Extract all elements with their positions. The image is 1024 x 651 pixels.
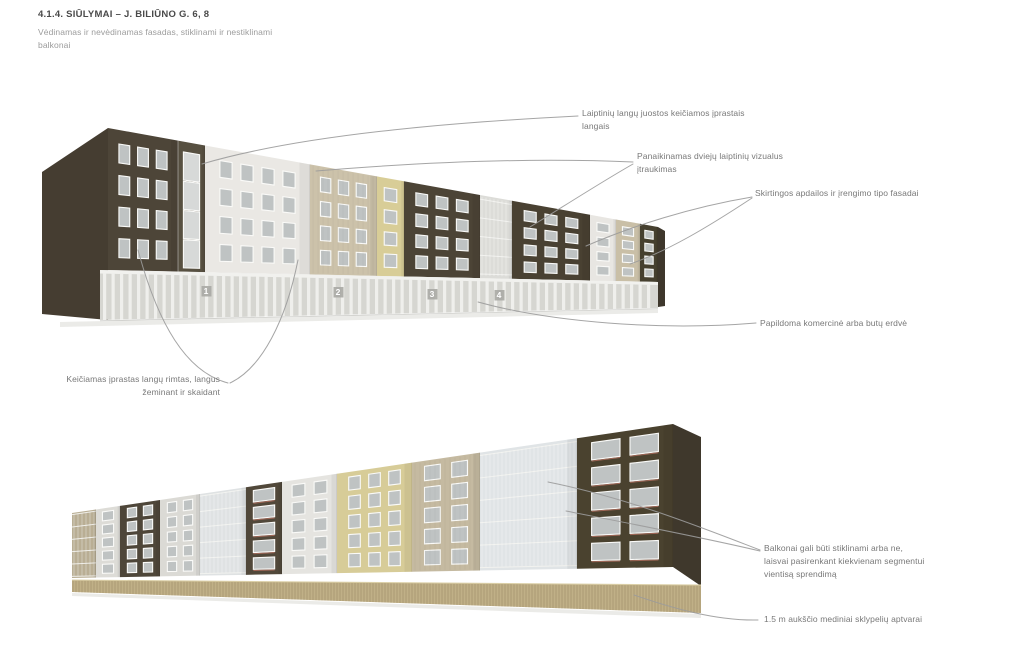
annotation-extra-commercial-space: Papildoma komercinė arba butų erdvė	[760, 317, 907, 330]
annotation-wooden-fence: 1.5 m aukščio mediniai sklypelių aptvara…	[764, 613, 922, 626]
annotation-different-facade-types: Skirtingos apdailos ir įrengimo tipo fas…	[755, 187, 919, 200]
annotation-balconies-glazed-or-not: Balkonai gali būti stiklinami arba ne, l…	[764, 542, 924, 580]
unit-number-label: 4	[497, 290, 502, 300]
annotation-window-rhythm-changed: Keičiamas įprastas langų rimtas, langus …	[28, 373, 220, 399]
annotation-stairwell-recess-removed: Panaikinamas dviejų laiptinių vizualus į…	[637, 150, 783, 176]
page-subtitle-line: Vėdinamas ir nevėdinamas fasadas, stikli…	[38, 26, 272, 39]
page-subtitle: Vėdinamas ir nevėdinamas fasadas, stikli…	[38, 26, 272, 52]
proposal-page: 1234 4.1.4. SIŪLYMAI – J. BILIŪNO G. 6, …	[0, 0, 1024, 651]
page-subtitle-line: balkonai	[38, 39, 272, 52]
unit-number-label: 3	[430, 289, 435, 299]
page-title: 4.1.4. SIŪLYMAI – J. BILIŪNO G. 6, 8	[38, 9, 209, 20]
unit-number-label: 1	[204, 286, 209, 296]
top-building-rendering: 1234	[42, 128, 665, 327]
annotation-stairwell-window-bands: Laiptinių langų juostos keičiamos įprast…	[582, 107, 745, 133]
unit-number-label: 2	[336, 287, 341, 297]
bottom-building-rendering	[72, 424, 701, 618]
leader-line	[316, 160, 633, 171]
